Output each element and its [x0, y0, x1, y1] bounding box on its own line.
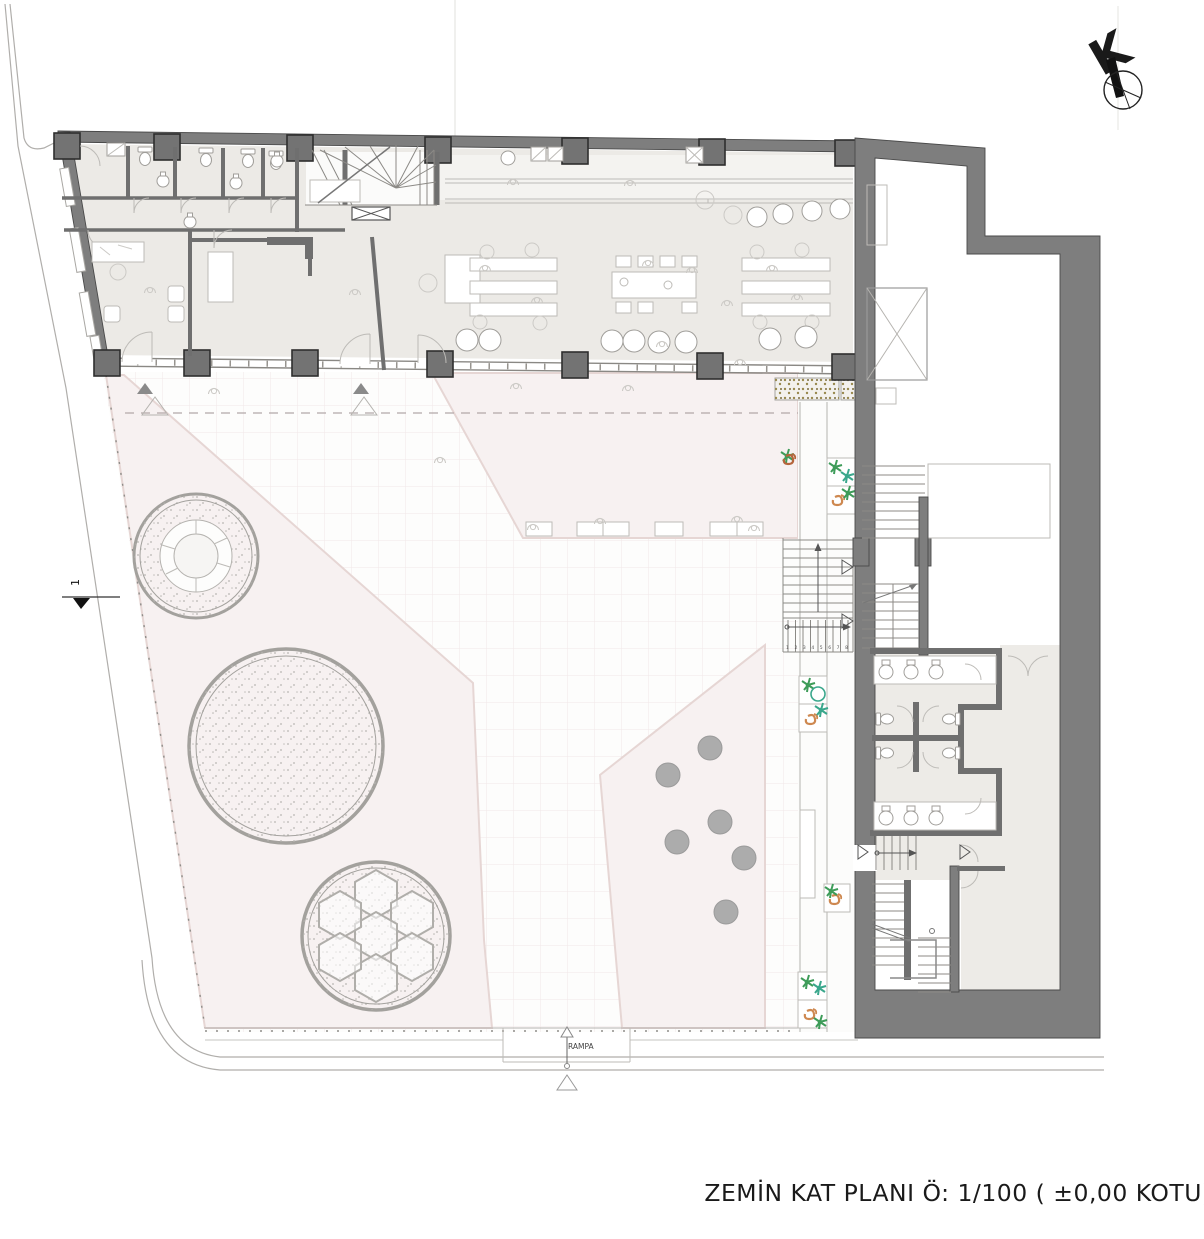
planter-circle-hex — [302, 862, 450, 1010]
north-arrow: K — [1080, 19, 1142, 109]
planter-circle-large — [189, 649, 383, 843]
bench — [800, 810, 815, 898]
store-room-floor — [961, 868, 1060, 990]
plan-title: ZEMİN KAT PLANI Ö: 1/100 ( ±0,00 KOTU) — [704, 1179, 1204, 1207]
ramp-label: RAMPA — [568, 1042, 595, 1051]
floor-plan-drawing: 1 2 3 4 5 6 7 8 RAMPA 1 — [0, 0, 1204, 1239]
stair-step-numbers: 1 2 3 4 5 6 7 8 — [786, 645, 848, 651]
courtyard: 1 2 3 4 5 6 7 8 RAMPA 1 — [62, 372, 858, 1090]
section-number: 1 — [69, 579, 82, 586]
floor-opening — [928, 464, 1050, 538]
floor-plan-sheet: 1 2 3 4 5 6 7 8 RAMPA 1 — [0, 0, 1204, 1239]
wall-opening — [853, 845, 877, 871]
skylight — [867, 288, 927, 380]
wc-block-floor — [872, 652, 1000, 880]
section-marker: 1 — [62, 579, 120, 609]
planter-circle-small — [134, 494, 258, 618]
ramp: RAMPA — [503, 1027, 630, 1090]
right-wing — [853, 138, 1100, 1038]
